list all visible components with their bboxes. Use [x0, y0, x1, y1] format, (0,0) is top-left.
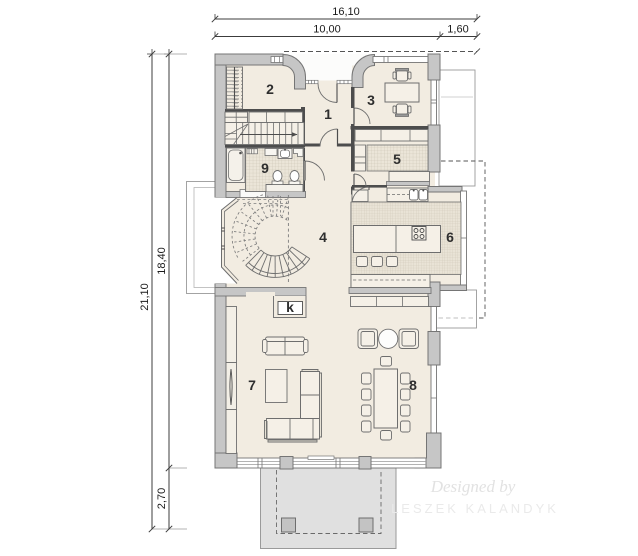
svg-text:10,00: 10,00	[313, 24, 341, 36]
svg-text:1,60: 1,60	[447, 24, 468, 36]
svg-text:2: 2	[266, 81, 274, 97]
svg-text:2,70: 2,70	[156, 488, 168, 509]
svg-text:LESZEK KALANDYK: LESZEK KALANDYK	[391, 501, 559, 516]
svg-text:8: 8	[409, 377, 417, 393]
svg-text:3: 3	[367, 92, 375, 108]
svg-text:1: 1	[324, 106, 332, 122]
svg-text:9: 9	[261, 160, 269, 176]
svg-text:7: 7	[248, 377, 256, 393]
svg-text:18,40: 18,40	[156, 247, 168, 275]
svg-text:6: 6	[446, 229, 454, 245]
svg-text:k: k	[286, 299, 294, 315]
svg-text:21,10: 21,10	[139, 283, 151, 311]
svg-text:4: 4	[319, 229, 327, 245]
svg-text:Designed by: Designed by	[430, 477, 516, 496]
svg-text:16,10: 16,10	[332, 6, 360, 18]
svg-text:5: 5	[393, 151, 401, 167]
